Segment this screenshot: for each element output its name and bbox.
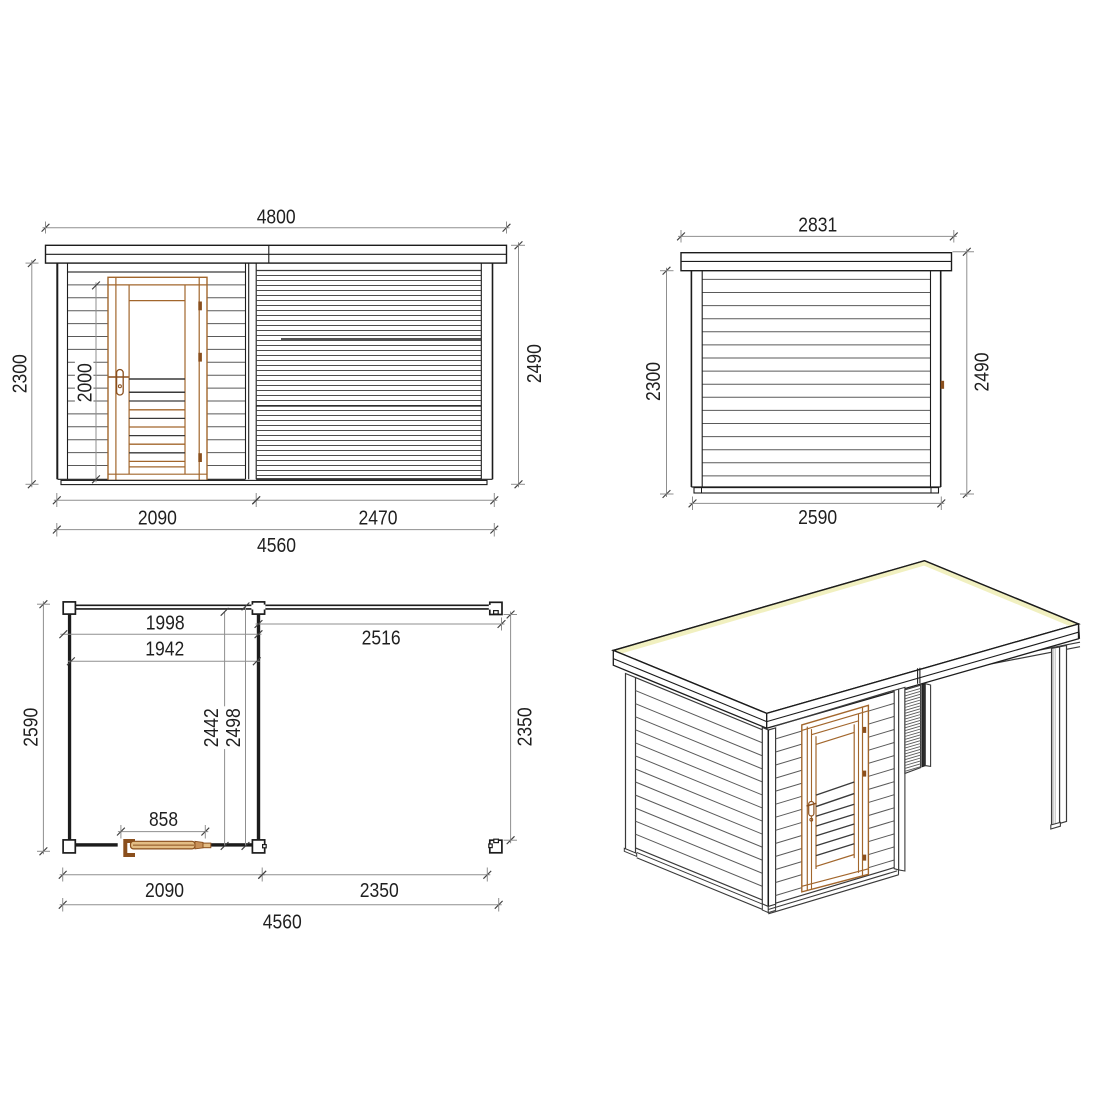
svg-text:4560: 4560 xyxy=(257,535,296,557)
svg-text:2831: 2831 xyxy=(798,215,837,237)
svg-text:2000: 2000 xyxy=(74,363,96,402)
svg-text:2300: 2300 xyxy=(10,354,32,393)
svg-text:2470: 2470 xyxy=(359,507,398,529)
svg-text:2590: 2590 xyxy=(20,708,42,747)
svg-text:4800: 4800 xyxy=(257,207,296,229)
svg-text:2090: 2090 xyxy=(145,880,184,902)
svg-text:2350: 2350 xyxy=(515,707,537,746)
svg-text:2300: 2300 xyxy=(643,362,665,401)
svg-text:2490: 2490 xyxy=(524,344,546,383)
svg-text:2442: 2442 xyxy=(201,708,223,747)
svg-text:2516: 2516 xyxy=(362,627,401,649)
svg-text:2350: 2350 xyxy=(360,880,399,902)
svg-text:4560: 4560 xyxy=(263,912,302,934)
svg-text:2590: 2590 xyxy=(798,507,837,529)
svg-text:2490: 2490 xyxy=(972,353,994,392)
svg-text:2498: 2498 xyxy=(223,708,245,747)
svg-text:2090: 2090 xyxy=(138,507,177,529)
svg-text:1942: 1942 xyxy=(145,639,184,661)
svg-text:858: 858 xyxy=(149,809,178,831)
svg-text:1998: 1998 xyxy=(146,613,185,635)
